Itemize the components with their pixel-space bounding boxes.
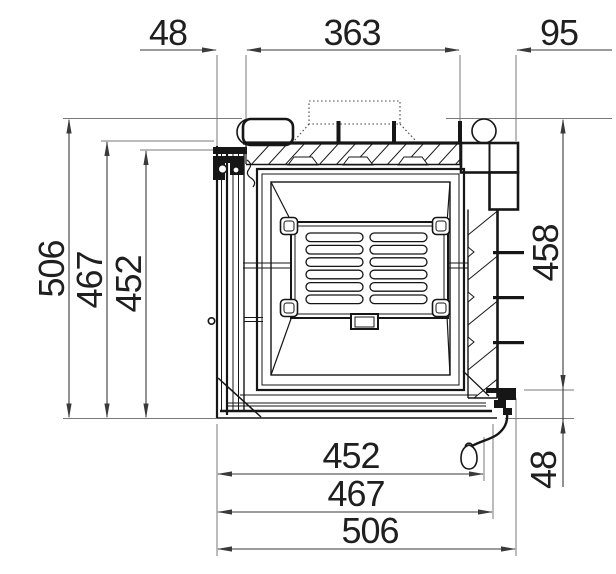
dim-label-top-363: 363 xyxy=(323,12,380,53)
door-hinge xyxy=(213,147,255,187)
flue-collar-dashed xyxy=(294,101,416,141)
dim-label-top-48: 48 xyxy=(149,12,187,53)
convection-grate xyxy=(243,218,468,330)
dim-label-bottom-467: 467 xyxy=(327,473,384,514)
technical-drawing-page: 48 363 95 506 467 452 458 48 452 467 506 xyxy=(0,0,616,574)
grate-slots xyxy=(306,233,427,304)
dimension-labels: 48 363 95 506 467 452 458 48 452 467 506 xyxy=(31,12,578,551)
right-pipe-circle xyxy=(472,119,496,143)
inner-frame xyxy=(257,169,464,390)
dim-label-top-95: 95 xyxy=(540,12,578,53)
support-rods xyxy=(243,263,468,268)
bottom-frame xyxy=(217,371,497,418)
left-top-bump xyxy=(243,119,293,145)
door-pivot xyxy=(208,318,214,324)
rear-fin-panel xyxy=(468,210,524,399)
technical-drawing: 48 363 95 506 467 452 458 48 452 467 506 xyxy=(0,0,616,574)
dim-label-left-452: 452 xyxy=(108,255,149,312)
dim-label-left-467: 467 xyxy=(69,251,110,308)
stove-drawing xyxy=(208,101,524,469)
top-plate-posts xyxy=(337,121,463,143)
right-corner-duct xyxy=(461,143,518,210)
grate-corner-bolts xyxy=(281,218,450,317)
handle-knob xyxy=(461,443,477,469)
dim-label-left-506: 506 xyxy=(31,240,72,297)
dim-label-bottom-506: 506 xyxy=(341,510,398,551)
dim-label-right-458: 458 xyxy=(525,224,566,281)
dim-label-bottom-452: 452 xyxy=(322,435,379,476)
door-edge-profile xyxy=(208,146,263,419)
dim-label-right-48: 48 xyxy=(523,451,564,489)
